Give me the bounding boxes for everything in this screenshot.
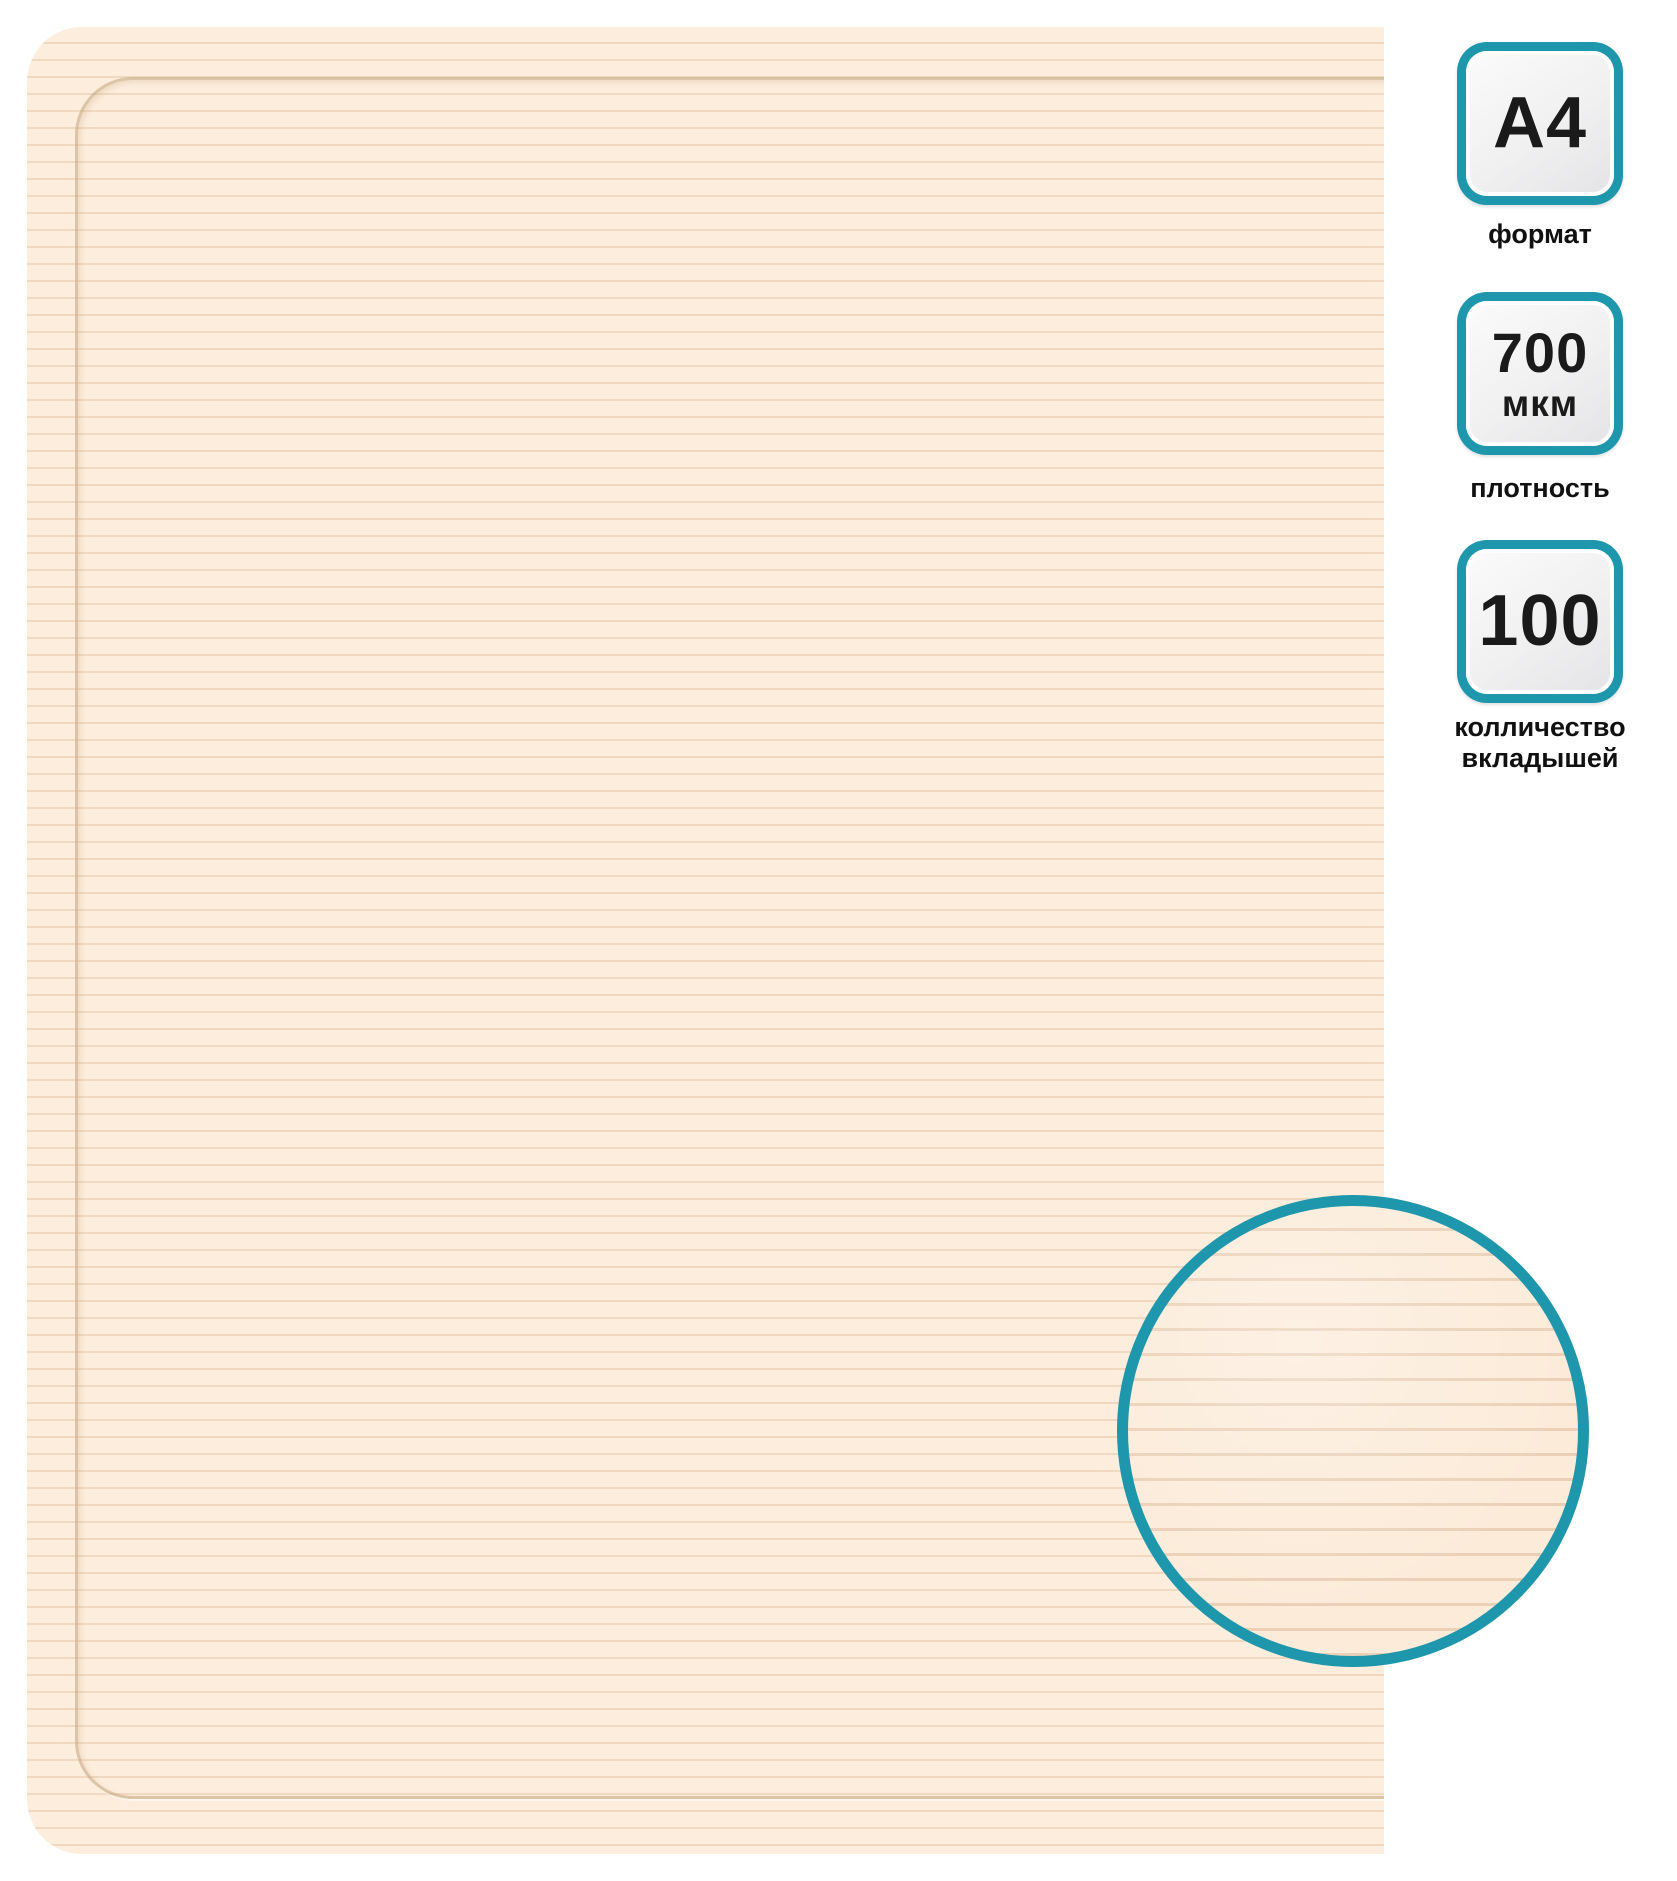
badge-density-label: плотность: [1405, 473, 1675, 504]
badge-insert-count: 100: [1457, 540, 1623, 703]
badge-format: A4: [1457, 42, 1623, 205]
badge-density-value: 700: [1492, 326, 1588, 379]
badge-insert-count-value: 100: [1478, 587, 1601, 655]
badge-density-plate: 700 мкм: [1466, 301, 1614, 446]
badge-insert-count-label: колличество вкладышей: [1405, 712, 1675, 774]
badge-format-value: A4: [1493, 89, 1587, 157]
texture-magnifier-circle: [1117, 1195, 1589, 1667]
badge-density: 700 мкм: [1457, 292, 1623, 455]
badge-format-label: формат: [1405, 219, 1675, 250]
product-image-canvas: { "colors": { "background": "#ffffff", "…: [0, 0, 1677, 1881]
badge-insert-count-plate: 100: [1466, 549, 1614, 694]
badge-format-plate: A4: [1466, 51, 1614, 196]
badge-density-unit: мкм: [1502, 386, 1578, 421]
